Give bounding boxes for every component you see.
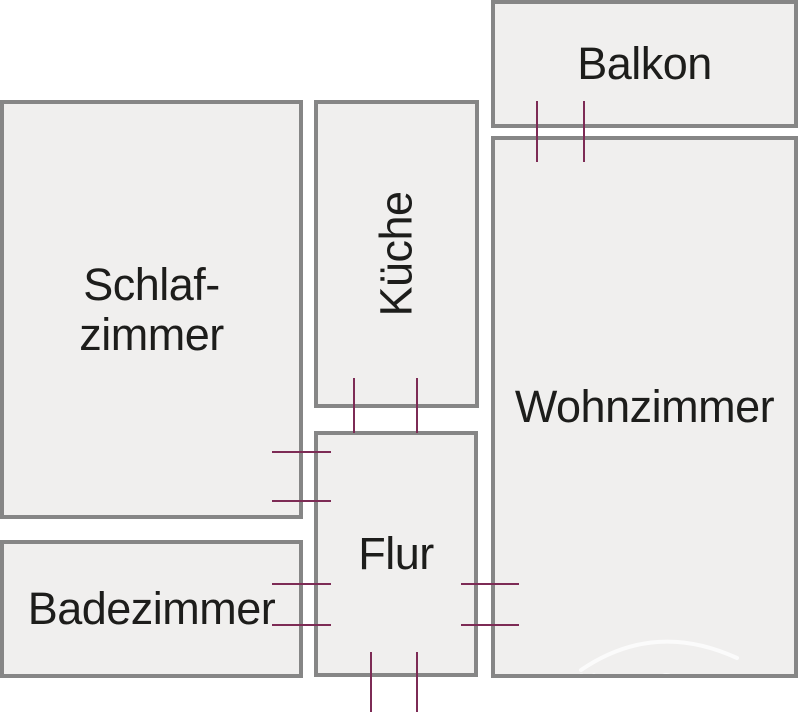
room-kueche: Küche <box>314 100 479 408</box>
room-wohnzimmer: Wohnzimmer HomeCompany <box>491 136 798 678</box>
door-marker-badezimmer-flur-top <box>272 583 331 585</box>
door-marker-schlafzimmer-flur-top <box>272 451 331 453</box>
room-label-schlafzimmer: Schlaf- zimmer <box>79 260 223 360</box>
room-label-badezimmer: Badezimmer <box>28 584 276 634</box>
door-marker-balkon-wohnzimmer-right <box>583 101 585 162</box>
door-marker-schlafzimmer-flur-bottom <box>272 500 331 502</box>
room-label-balkon: Balkon <box>577 39 712 89</box>
floor-plan: Balkon Schlaf- zimmer Küche Wohnzimmer H… <box>0 0 800 713</box>
watermark-swoosh-icon <box>579 632 739 672</box>
door-marker-flur-wohnzimmer-bottom <box>461 624 519 626</box>
room-badezimmer: Badezimmer <box>0 540 303 678</box>
room-label-schlafzimmer-line2: zimmer <box>79 310 223 360</box>
door-marker-kueche-flur-left <box>353 378 355 433</box>
door-marker-kueche-flur-right <box>416 378 418 433</box>
room-label-kueche: Küche <box>371 191 421 316</box>
room-schlafzimmer: Schlaf- zimmer <box>0 100 303 519</box>
door-marker-flur-exit-right <box>416 652 418 712</box>
door-marker-badezimmer-flur-bottom <box>272 624 331 626</box>
room-label-wohnzimmer: Wohnzimmer <box>515 382 774 432</box>
door-marker-flur-exit-left <box>370 652 372 712</box>
room-label-flur: Flur <box>358 529 434 579</box>
room-label-schlafzimmer-line1: Schlaf- <box>79 260 223 310</box>
door-marker-flur-wohnzimmer-top <box>461 583 519 585</box>
door-marker-balkon-wohnzimmer-left <box>536 101 538 162</box>
watermark-text: HomeCompany <box>578 668 782 678</box>
room-flur: Flur <box>314 431 478 677</box>
